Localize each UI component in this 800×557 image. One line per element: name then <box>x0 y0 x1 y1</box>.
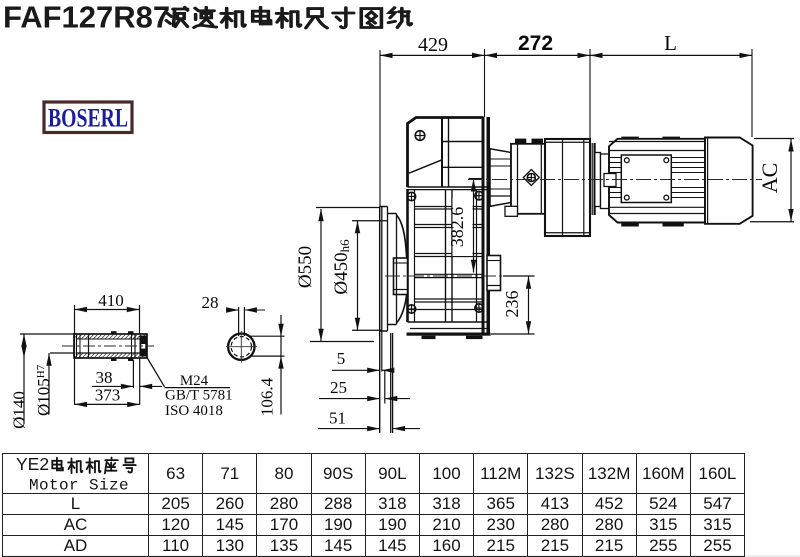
svg-text:38: 38 <box>96 368 113 387</box>
svg-text:YE2: YE2 <box>16 454 49 474</box>
svg-text:410: 410 <box>98 291 124 310</box>
svg-text:429: 429 <box>418 34 448 56</box>
svg-text:272: 272 <box>518 32 553 55</box>
svg-text:AC: AC <box>757 163 782 194</box>
svg-text:Ø550: Ø550 <box>295 246 316 288</box>
svg-text:FAF127R87: FAF127R87 <box>3 0 170 35</box>
svg-text:5: 5 <box>337 349 346 368</box>
svg-text:BOSERL: BOSERL <box>48 104 128 133</box>
svg-text:Ø105H7: Ø105H7 <box>34 364 53 416</box>
svg-text:Ø450h6: Ø450h6 <box>331 239 352 295</box>
svg-text:51: 51 <box>329 409 346 428</box>
svg-text:373: 373 <box>95 386 121 405</box>
svg-text:L: L <box>664 31 677 55</box>
svg-text:Ø140: Ø140 <box>10 391 29 429</box>
svg-text:ISO 4018: ISO 4018 <box>165 403 223 419</box>
svg-text:106.4: 106.4 <box>258 377 277 416</box>
svg-text:382.6: 382.6 <box>447 207 467 248</box>
svg-text:236: 236 <box>502 291 522 318</box>
svg-text:GB/T 5781: GB/T 5781 <box>165 388 233 404</box>
svg-text:28: 28 <box>202 293 219 312</box>
svg-text:25: 25 <box>330 378 347 397</box>
svg-text:Motor Size: Motor Size <box>29 477 129 495</box>
